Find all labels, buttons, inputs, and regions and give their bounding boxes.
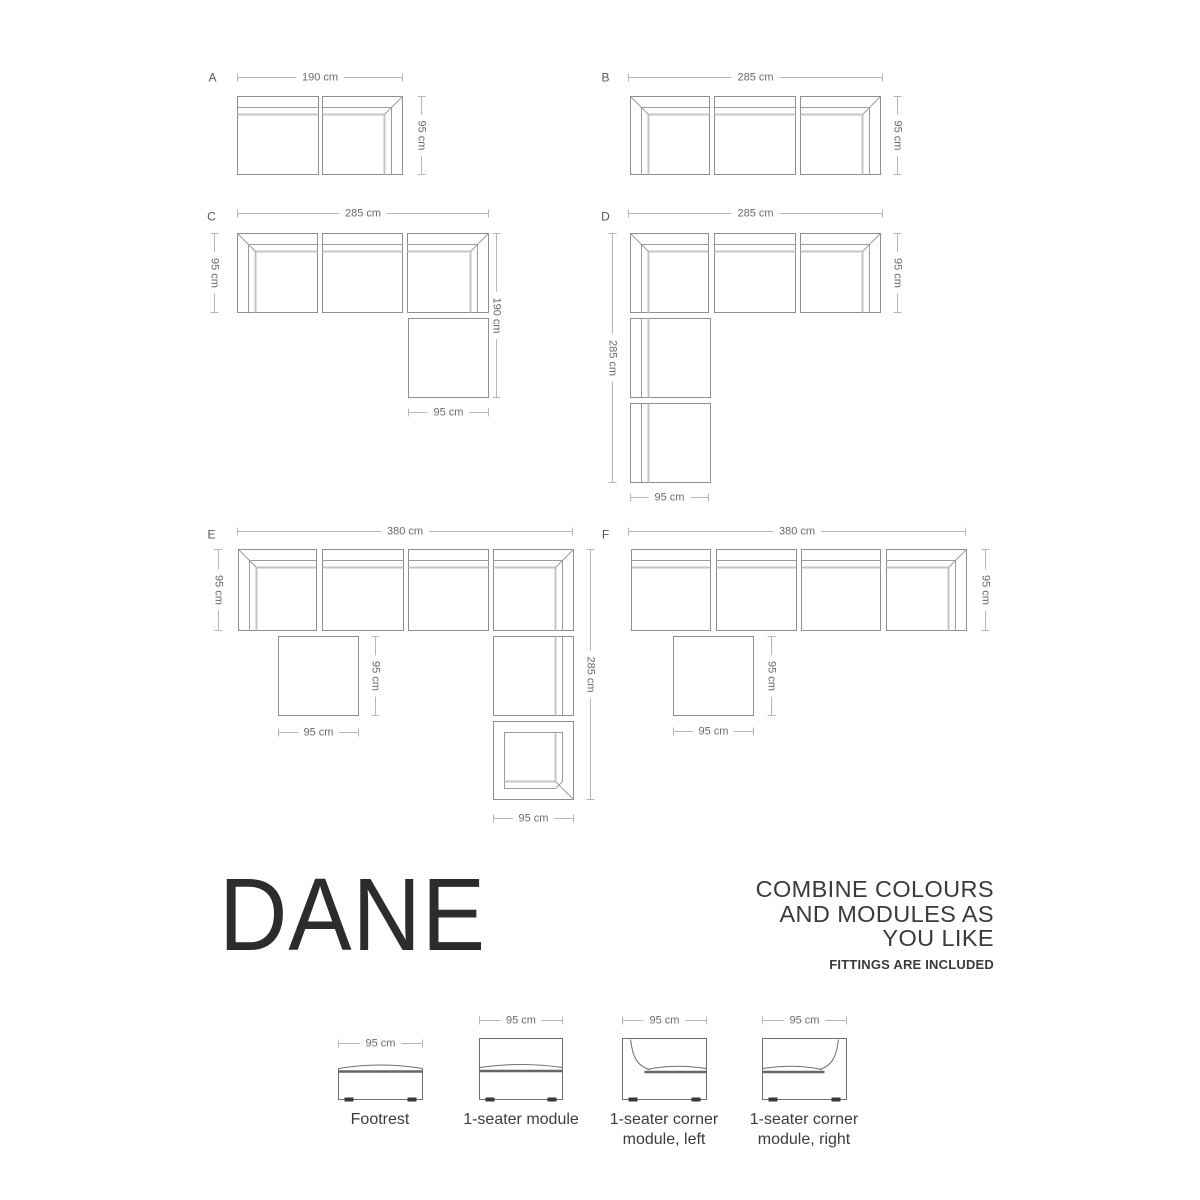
module-seat-t xyxy=(802,550,881,631)
dimension-text: 95 cm xyxy=(892,121,904,151)
dimension-text: 95 cm xyxy=(370,661,382,691)
dimension-text: 285 cm xyxy=(737,72,773,84)
dimension: 95 cm xyxy=(416,97,428,175)
module-corner-tr xyxy=(494,550,574,631)
config-letter-D: D xyxy=(601,210,610,224)
module-corner-tl xyxy=(239,550,317,631)
module-seat-l xyxy=(631,319,711,398)
module-seat-t xyxy=(632,550,711,631)
dimension: 95 cm xyxy=(409,407,489,419)
fittings-note: FITTINGS ARE INCLUDED xyxy=(829,957,994,972)
dimension: 95 cm xyxy=(980,550,992,631)
module-footrest xyxy=(409,319,489,398)
dimension: 95 cm xyxy=(213,550,225,631)
legend-label-corner-module-right: 1-seater corner module, right xyxy=(718,1110,890,1150)
dimension-text: 95 cm xyxy=(434,407,464,419)
dimension: 190 cm xyxy=(491,234,503,398)
dimension: 95 cm xyxy=(892,234,904,313)
config-D: 285 cm95 cm285 cm95 cmD xyxy=(601,208,903,504)
dimension-text: 95 cm xyxy=(655,492,685,504)
module-corner-tl xyxy=(238,234,318,313)
module-corner-tr xyxy=(887,550,967,631)
module-seat-t xyxy=(323,234,403,313)
dimension-text: 285 cm xyxy=(607,340,619,376)
module-footrest xyxy=(674,637,754,716)
dimension-text: 95 cm xyxy=(304,727,334,739)
dimension: 380 cm xyxy=(629,526,966,538)
dimension: 95 cm xyxy=(279,727,359,739)
module-corner-tr xyxy=(323,97,403,175)
module-corner-br xyxy=(494,722,574,800)
dimension: 285 cm xyxy=(629,208,883,220)
config-E: 380 cm95 cm95 cm95 cm285 cm95 cmE xyxy=(207,526,596,825)
modules-diagram: 190 cm95 cmA285 cm95 cmB285 cm95 cm190 c… xyxy=(0,0,1200,1200)
dimension-text: 285 cm xyxy=(585,656,597,692)
config-C: 285 cm95 cm190 cm95 cmC xyxy=(207,208,502,419)
dimension-text: 285 cm xyxy=(737,208,773,220)
module-corner-tl xyxy=(631,234,709,313)
dimension-text: 95 cm xyxy=(209,258,221,288)
dimension: 95 cm xyxy=(763,1015,847,1027)
dimension: 95 cm xyxy=(209,234,221,313)
dimension-text: 380 cm xyxy=(387,526,423,538)
module-seat-t xyxy=(715,234,796,313)
dimension: 285 cm xyxy=(238,208,489,220)
module-seat-r xyxy=(494,637,574,716)
module-seat-t xyxy=(409,550,489,631)
dimension: 95 cm xyxy=(494,813,574,825)
module-corner-tr xyxy=(801,97,881,175)
dimension: 95 cm xyxy=(766,637,778,716)
dimension: 95 cm xyxy=(674,726,754,738)
config-A: 190 cm95 cmA xyxy=(208,71,427,175)
config-letter-A: A xyxy=(208,71,216,85)
config-B: 285 cm95 cmB xyxy=(601,71,903,175)
legend-drawing-corner-left: 95 cm xyxy=(623,1015,707,1102)
dimension-text: 190 cm xyxy=(302,72,338,84)
legend-drawing-seater: 95 cm xyxy=(480,1015,563,1102)
dimension: 285 cm xyxy=(629,72,883,84)
module-seat-l xyxy=(631,404,711,483)
dimension-text: 285 cm xyxy=(345,208,381,220)
dimension: 95 cm xyxy=(631,492,709,504)
module-corner-tr xyxy=(801,234,881,313)
dimension-text: 190 cm xyxy=(491,297,503,333)
dimension-text: 95 cm xyxy=(519,813,549,825)
dimension-text: 95 cm xyxy=(766,661,778,691)
module-seat-t xyxy=(715,97,796,175)
dimension: 285 cm xyxy=(585,550,597,800)
dimension-text: 95 cm xyxy=(366,1038,396,1050)
dimension-text: 95 cm xyxy=(506,1015,536,1027)
dimension: 95 cm xyxy=(480,1015,563,1027)
module-seat-t xyxy=(323,550,404,631)
dimension: 190 cm xyxy=(238,72,403,84)
dimension-text: 95 cm xyxy=(416,121,428,151)
tagline-text: COMBINE COLOURS AND MODULES AS YOU LIKE xyxy=(756,877,994,951)
config-letter-C: C xyxy=(207,210,216,224)
poster: 190 cm95 cmA285 cm95 cmB285 cm95 cm190 c… xyxy=(0,0,1200,1200)
dimension: 95 cm xyxy=(339,1038,423,1050)
config-letter-E: E xyxy=(207,528,215,542)
dimension: 95 cm xyxy=(370,637,382,716)
legend-drawing-corner-right: 95 cm xyxy=(763,1015,847,1102)
dimension-text: 95 cm xyxy=(892,258,904,288)
config-F: 380 cm95 cm95 cm95 cmF xyxy=(602,526,992,738)
dimension-text: 95 cm xyxy=(213,575,225,605)
module-seat-t xyxy=(717,550,797,631)
legend-drawing-footrest: 95 cm xyxy=(339,1038,423,1102)
module-footrest xyxy=(279,637,359,716)
product-title: DANE xyxy=(219,861,486,969)
module-corner-tr xyxy=(408,234,489,313)
dimension: 380 cm xyxy=(238,526,573,538)
dimension: 95 cm xyxy=(623,1015,707,1027)
dimension-text: 95 cm xyxy=(650,1015,680,1027)
dimension-text: 380 cm xyxy=(779,526,815,538)
dimension: 285 cm xyxy=(607,234,619,483)
config-letter-F: F xyxy=(602,528,609,542)
dimension: 95 cm xyxy=(892,97,904,175)
dimension-text: 95 cm xyxy=(699,726,729,738)
module-seat-t xyxy=(238,97,319,175)
dimension-text: 95 cm xyxy=(980,575,992,605)
dimension-text: 95 cm xyxy=(790,1015,820,1027)
config-letter-B: B xyxy=(601,71,609,85)
module-corner-tl xyxy=(631,97,710,175)
